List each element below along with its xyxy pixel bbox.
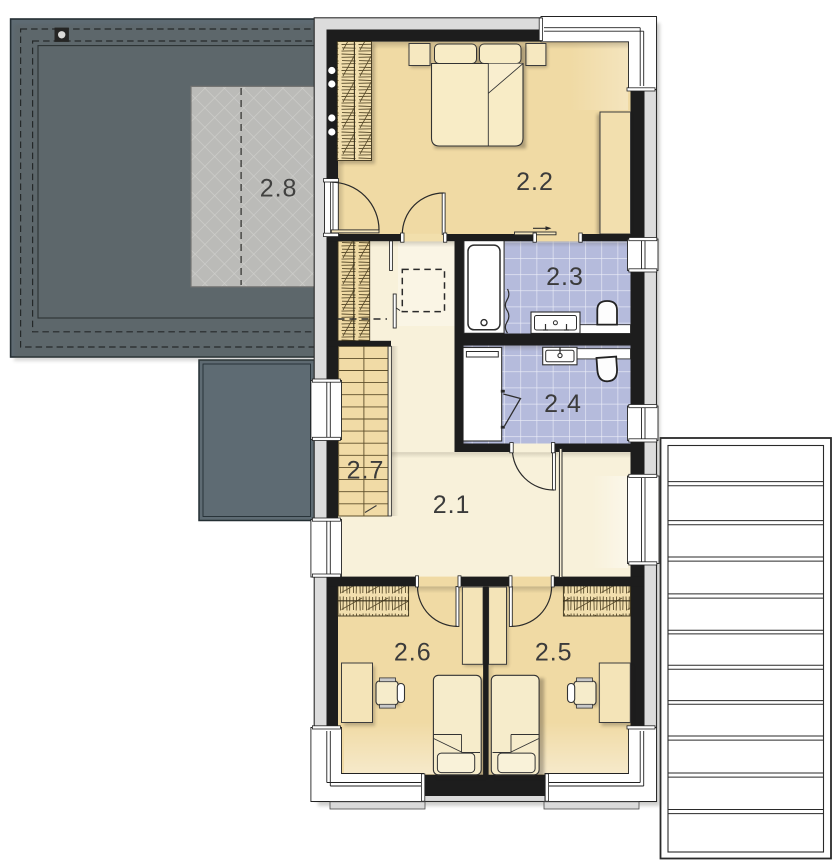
svg-text:2.1: 2.1 bbox=[433, 491, 471, 519]
svg-text:2.2: 2.2 bbox=[516, 168, 554, 196]
svg-text:2.3: 2.3 bbox=[546, 263, 584, 291]
svg-text:2.5: 2.5 bbox=[535, 639, 573, 667]
svg-text:2.6: 2.6 bbox=[394, 639, 432, 667]
svg-text:2.7: 2.7 bbox=[347, 457, 385, 485]
svg-text:2.4: 2.4 bbox=[544, 390, 582, 418]
